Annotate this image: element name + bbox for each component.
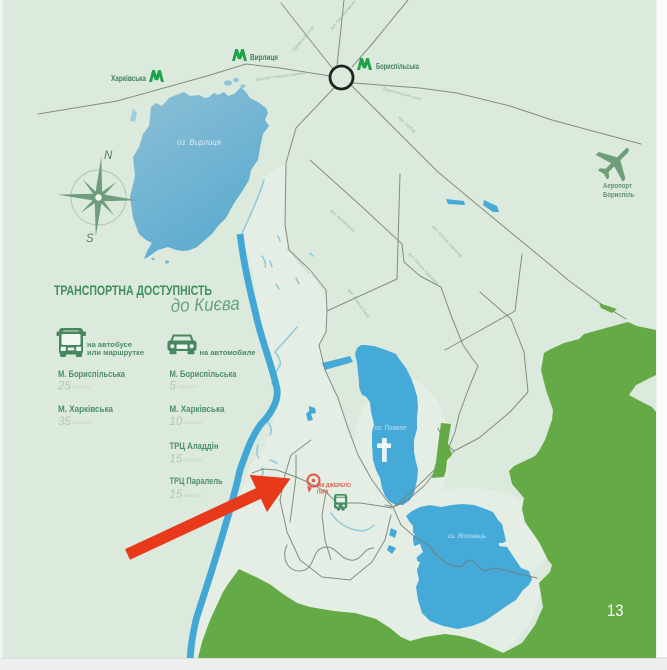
svg-text:Бориспільська: Бориспільська bbox=[376, 61, 419, 71]
svg-text:хвилин: хвилин bbox=[71, 420, 92, 426]
svg-text:оз. Вирлиця: оз. Вирлиця bbox=[177, 138, 222, 147]
svg-text:до Києва: до Києва bbox=[170, 293, 240, 316]
svg-text:М. Харківська: М. Харківська bbox=[58, 404, 114, 414]
svg-text:25: 25 bbox=[57, 381, 71, 393]
svg-text:М. Бориспільська: М. Бориспільська bbox=[170, 369, 238, 379]
svg-text:или маршрутке: или маршрутке bbox=[87, 348, 144, 357]
svg-text:ЖК ДЖЕРЕЛО: ЖК ДЖЕРЕЛО bbox=[316, 483, 351, 489]
svg-text:15: 15 bbox=[170, 489, 183, 501]
svg-text:N: N bbox=[104, 150, 113, 162]
svg-text:Вирлиця: Вирлиця bbox=[250, 52, 278, 62]
svg-text:хвилин: хвилин bbox=[176, 385, 197, 391]
svg-text:13: 13 bbox=[607, 602, 624, 620]
svg-text:ПАРК: ПАРК bbox=[317, 489, 329, 495]
svg-text:15: 15 bbox=[170, 454, 183, 466]
svg-text:Харківська: Харківська bbox=[111, 73, 146, 83]
svg-text:хвилин: хвилин bbox=[71, 385, 92, 391]
svg-text:оз. Плавне: оз. Плавне bbox=[375, 425, 407, 432]
svg-text:Бориспіль: Бориспіль bbox=[603, 191, 635, 199]
svg-text:ТРЦ Аладдін: ТРЦ Аладдін bbox=[170, 441, 219, 451]
svg-text:5: 5 bbox=[170, 381, 177, 393]
svg-text:10: 10 bbox=[170, 416, 183, 428]
svg-text:хвилин: хвилин bbox=[182, 420, 203, 426]
svg-text:35: 35 bbox=[58, 416, 71, 428]
svg-text:ТРЦ Паралель: ТРЦ Паралель bbox=[170, 476, 223, 486]
svg-text:М. Харківська: М. Харківська bbox=[170, 404, 226, 414]
svg-text:М. Бориспільська: М. Бориспільська bbox=[58, 369, 126, 379]
svg-text:Аеропорт: Аеропорт bbox=[603, 183, 632, 190]
svg-text:оз. Вітовець: оз. Вітовець bbox=[448, 532, 487, 540]
svg-text:на автомобиле: на автомобиле bbox=[200, 348, 256, 357]
svg-text:хвилин: хвилин bbox=[182, 493, 203, 499]
svg-text:хвилин: хвилин bbox=[182, 458, 203, 464]
svg-text:S: S bbox=[86, 233, 94, 245]
